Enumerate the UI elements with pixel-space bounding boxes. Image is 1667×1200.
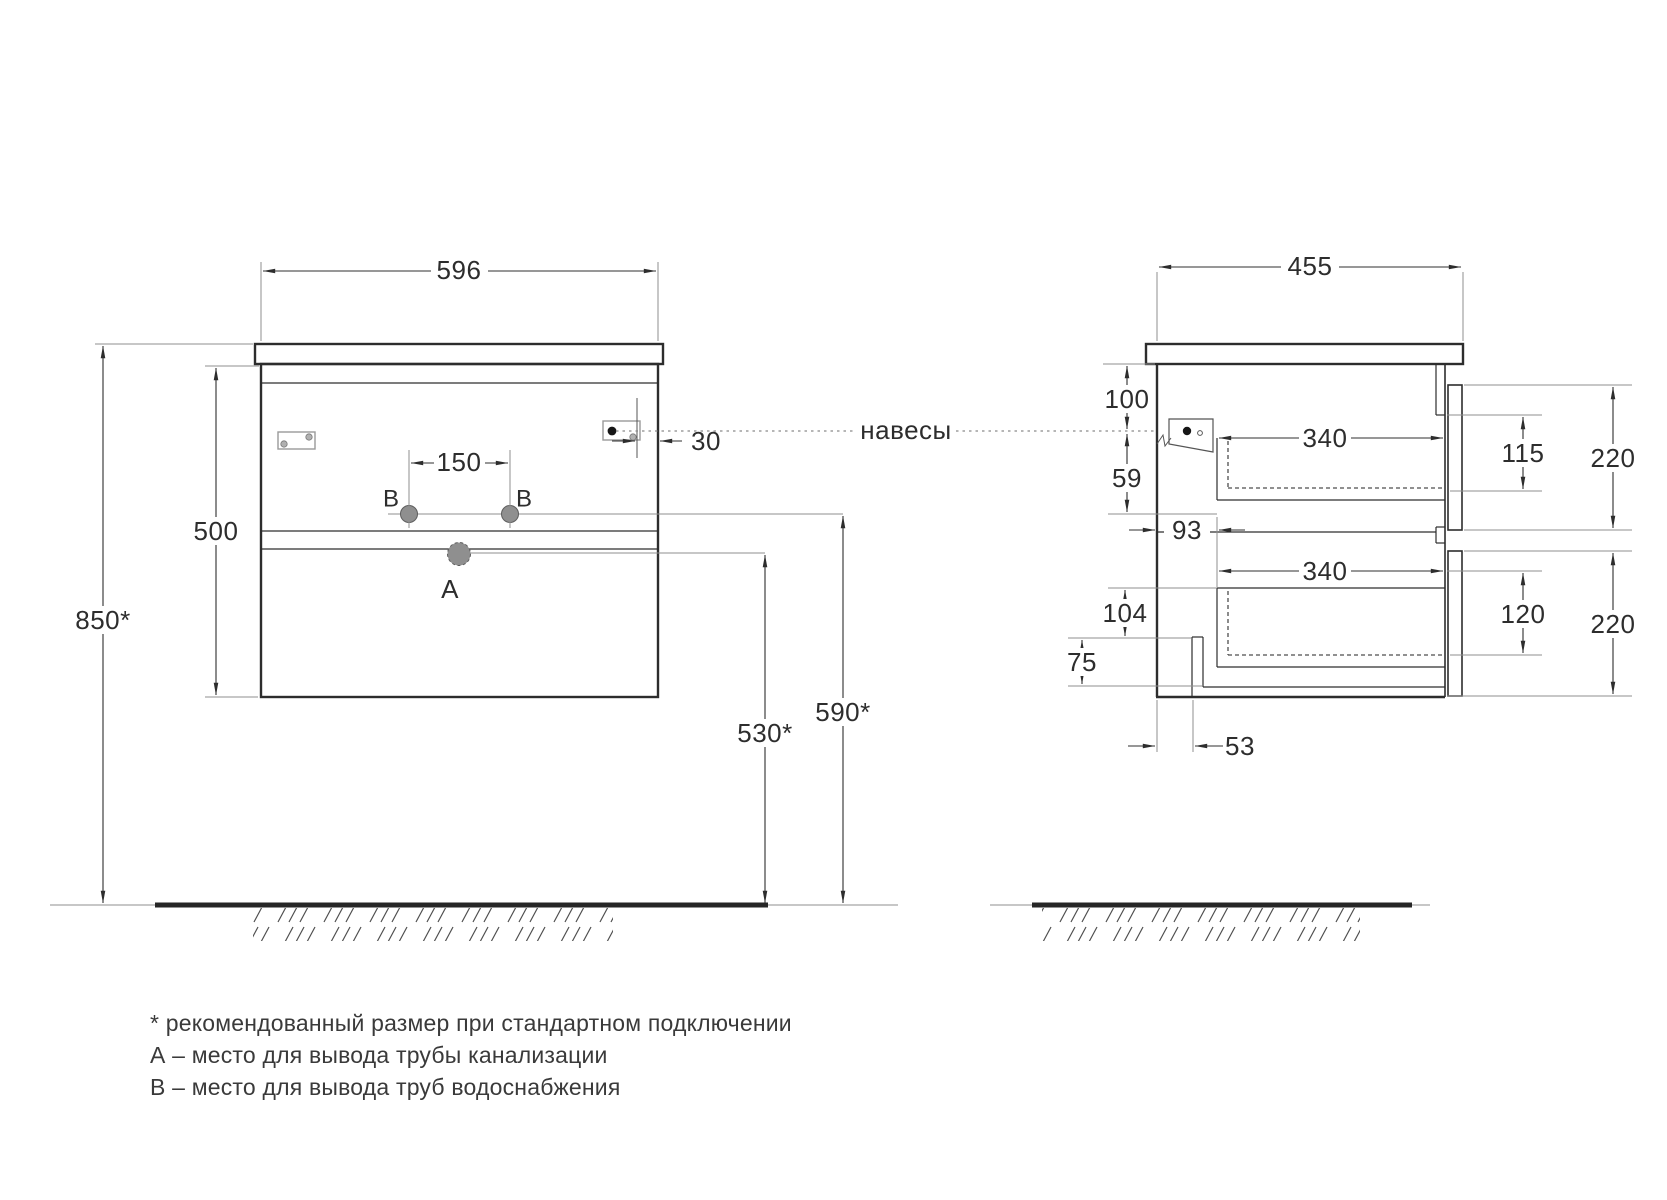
screw-icon — [630, 434, 636, 440]
floor — [50, 905, 1430, 941]
page: 596 500 850* 150 30 530* 590* B B A 455 … — [0, 0, 1667, 1200]
back-clearance-dim: 93 — [1172, 515, 1202, 545]
notch-width-dim: 53 — [1225, 731, 1255, 761]
bottom-edge-dim: 75 — [1067, 647, 1097, 677]
side-depth-dim: 455 — [1288, 251, 1333, 281]
label-water-b-right: B — [516, 486, 532, 513]
water-height-dim: 590* — [815, 697, 871, 727]
note-recommended-size: * рекомендованный размер при стандартном… — [150, 1010, 792, 1036]
side-countertop — [1146, 344, 1463, 364]
extension-lines — [95, 262, 1632, 752]
drain-hole — [448, 543, 471, 566]
hanger-hole-icon — [1183, 427, 1191, 435]
front-hanger-right — [603, 421, 640, 440]
screw-icon — [281, 441, 287, 447]
lower-drawer-box — [1217, 588, 1445, 667]
label-water-b-left: B — [383, 486, 399, 513]
floor-hatching-left — [253, 908, 613, 941]
dimension-lines — [103, 267, 1613, 903]
technical-drawing: 596 500 850* 150 30 530* 590* B B A 455 … — [0, 0, 1667, 1200]
lower-drawer-depth-dim: 340 — [1303, 556, 1348, 586]
mounting-height-dim: 850* — [75, 605, 131, 635]
front-countertop — [255, 344, 663, 364]
label-drain-a: A — [441, 574, 459, 604]
lower-front-height-dim: 220 — [1591, 609, 1636, 639]
hanger-drop-dim: 59 — [1112, 463, 1142, 493]
side-hanger-bracket — [1157, 419, 1213, 452]
front-width-dim: 596 — [437, 255, 482, 285]
hanger-top-offset-dim: 100 — [1105, 384, 1150, 414]
upper-inner-height-dim: 115 — [1502, 438, 1545, 468]
lower-drawer-front — [1448, 551, 1462, 696]
floor-hatching-right — [1042, 908, 1360, 941]
lower-inner-height-dim: 120 — [1501, 599, 1546, 629]
drain-height-dim: 530* — [737, 718, 793, 748]
bottom-offset-dim: 104 — [1103, 598, 1148, 628]
front-hanger-left — [278, 432, 315, 449]
text-halos — [66, 385, 1641, 747]
upper-drawer-depth-dim: 340 — [1303, 423, 1348, 453]
hangers-label: навесы — [860, 415, 952, 445]
hanger-hole-icon — [608, 427, 617, 436]
front-view — [255, 344, 843, 697]
note-drain-a: А – место для вывода трубы канализации — [150, 1042, 608, 1068]
note-water-b: В – место для вывода труб водоснабжения — [150, 1074, 621, 1100]
front-height-dim: 500 — [194, 516, 239, 546]
hanger-offset-dim: 30 — [691, 426, 721, 456]
upper-drawer-front — [1448, 385, 1462, 530]
water-spacing-dim: 150 — [437, 447, 482, 477]
upper-front-height-dim: 220 — [1591, 443, 1636, 473]
screw-icon — [306, 434, 312, 440]
